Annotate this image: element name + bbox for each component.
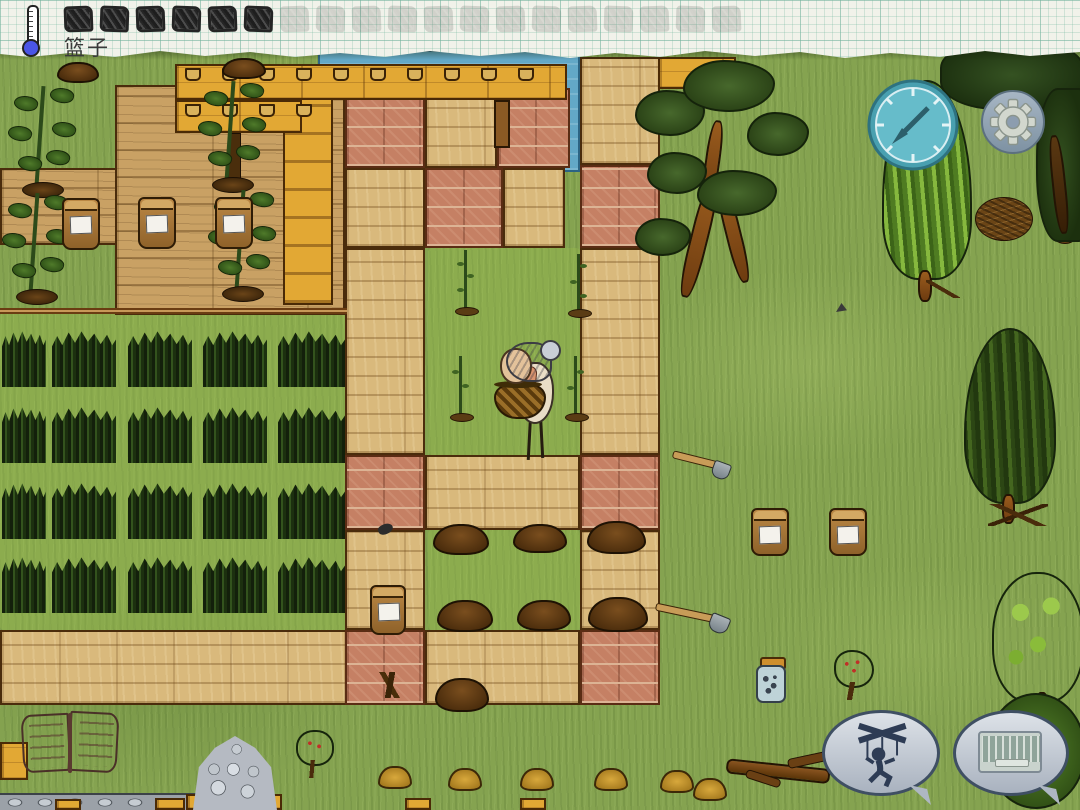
thermometer-icon: [22, 5, 40, 57]
adobe-wall[interactable]: [425, 455, 580, 530]
soil-pile[interactable]: [435, 678, 489, 712]
food-pip-empty: [568, 6, 598, 33]
food-pip-empty: [676, 6, 706, 33]
crop-row-clump[interactable]: [128, 555, 192, 613]
emote-button[interactable]: [822, 710, 940, 796]
ore-mound[interactable]: [594, 768, 628, 791]
crop-row-clump[interactable]: [52, 405, 116, 463]
ore-mound[interactable]: [693, 778, 727, 801]
crop-row-clump[interactable]: [52, 555, 116, 613]
food-pip-empty: [352, 6, 382, 33]
food-pip-empty: [460, 6, 490, 33]
soil-pile[interactable]: [588, 597, 648, 632]
adobe-wall[interactable]: [503, 168, 565, 248]
wood-box[interactable]: [55, 799, 81, 810]
crop-row-clump[interactable]: [2, 555, 46, 613]
ore-mound[interactable]: [660, 770, 694, 793]
wood-box[interactable]: [405, 798, 431, 810]
labeled-crock[interactable]: [215, 197, 253, 249]
tomato-plant[interactable]: [0, 185, 70, 305]
berry-seedling[interactable]: [832, 650, 872, 702]
compass-icon: [866, 78, 960, 172]
crop-row-clump[interactable]: [203, 481, 267, 539]
crop-row-clump[interactable]: [2, 329, 46, 387]
ore-mound[interactable]: [448, 768, 482, 791]
clay-cup[interactable]: [296, 104, 312, 117]
food-pip-filled: [172, 6, 202, 33]
crop-row-clump[interactable]: [128, 481, 192, 539]
food-pip-empty: [424, 6, 454, 33]
soil-pile[interactable]: [517, 600, 571, 631]
dirt-mound[interactable]: [222, 58, 266, 79]
clay-cup[interactable]: [481, 68, 497, 81]
food-pip-filled: [136, 6, 166, 33]
tomato-plant[interactable]: [6, 78, 76, 198]
clay-cup[interactable]: [407, 68, 423, 81]
clay-cup[interactable]: [444, 68, 460, 81]
crop-row-clump[interactable]: [2, 481, 46, 539]
brick-wall[interactable]: [425, 168, 503, 248]
hair-bun: [540, 340, 561, 361]
wood-box[interactable]: [520, 798, 546, 810]
clay-cup[interactable]: [518, 68, 534, 81]
berry-seedling[interactable]: [294, 730, 332, 780]
adobe-wall-column[interactable]: [345, 248, 425, 455]
brick-wall[interactable]: [580, 630, 660, 705]
food-pip-empty: [604, 6, 634, 33]
cypress-tree[interactable]: [958, 328, 1064, 534]
adobe-wall-row[interactable]: [0, 630, 347, 705]
food-pip-filled: [100, 6, 130, 33]
ore-mound[interactable]: [378, 766, 412, 789]
food-pip-empty: [316, 6, 346, 33]
brick-wall[interactable]: [345, 88, 425, 168]
labeled-crock[interactable]: [138, 197, 176, 249]
crop-row-clump[interactable]: [278, 405, 345, 463]
soil-pile[interactable]: [587, 521, 646, 554]
compass-button[interactable]: [866, 78, 960, 172]
adobe-wall[interactable]: [345, 168, 425, 248]
shovel[interactable]: [655, 597, 747, 645]
brick-wall[interactable]: [345, 455, 425, 530]
food-pip-empty: [532, 6, 562, 33]
tomato-plot[interactable]: [0, 57, 290, 317]
keyboard-icon: [978, 731, 1042, 773]
ore-mound[interactable]: [520, 768, 554, 791]
food-pip-empty: [496, 6, 526, 33]
soil-pile[interactable]: [433, 524, 489, 555]
game-viewport[interactable]: 篮子: [0, 0, 1080, 810]
crop-row-clump[interactable]: [128, 329, 192, 387]
thermometer-bulb: [22, 39, 40, 57]
tree-sapling[interactable]: [455, 250, 477, 316]
crop-row-clump[interactable]: [52, 329, 116, 387]
settings-button[interactable]: [981, 90, 1045, 154]
brick-wall[interactable]: [580, 455, 660, 530]
old-woman-with-basket[interactable]: [490, 340, 570, 465]
open-book[interactable]: [22, 708, 120, 778]
food-pip-filled: [244, 6, 274, 33]
clay-cup[interactable]: [296, 68, 312, 81]
food-pip-empty: [280, 6, 310, 33]
food-pip-row: [64, 6, 824, 36]
crop-row-clump[interactable]: [278, 555, 345, 613]
crop-row-clump[interactable]: [278, 481, 345, 539]
food-pip-empty: [640, 6, 670, 33]
clay-cup[interactable]: [333, 68, 349, 81]
food-pip-filled: [208, 6, 238, 33]
soil-crock[interactable]: [751, 508, 789, 556]
shovel[interactable]: [672, 448, 732, 482]
soil-pile[interactable]: [513, 524, 567, 553]
crop-row-clump[interactable]: [278, 329, 345, 387]
soil-crock[interactable]: [829, 508, 867, 556]
basket: [494, 383, 546, 419]
crop-row-clump[interactable]: [203, 405, 267, 463]
seed-jar[interactable]: [756, 657, 786, 703]
dirt-mound[interactable]: [57, 62, 99, 83]
gear-icon: [983, 92, 1043, 152]
puppet-crossed-icon: [828, 716, 934, 790]
tree-sapling[interactable]: [450, 356, 472, 422]
tree-sapling[interactable]: [568, 254, 590, 318]
crop-row-clump[interactable]: [203, 555, 267, 613]
olive-tree[interactable]: [635, 60, 805, 305]
stone-pile[interactable]: [193, 736, 277, 810]
labeled-crock[interactable]: [62, 198, 100, 250]
food-pip-filled: [64, 6, 94, 33]
food-pip-empty: [712, 6, 742, 33]
crop-row-clump[interactable]: [52, 481, 116, 539]
soil-pile[interactable]: [437, 600, 493, 632]
labeled-crock[interactable]: [370, 585, 406, 635]
clay-cup[interactable]: [370, 68, 386, 81]
selected-item-label: 篮子: [64, 32, 110, 62]
shelf-pole: [494, 100, 510, 148]
dry-branch[interactable]: [355, 672, 425, 698]
crop-field[interactable]: [0, 315, 347, 630]
tomato-plant[interactable]: [196, 73, 266, 193]
adobe-wall[interactable]: [425, 92, 497, 168]
wood-box[interactable]: [155, 798, 185, 810]
crop-row-clump[interactable]: [2, 405, 46, 463]
flint-chip[interactable]: [836, 303, 847, 312]
crop-row-clump[interactable]: [128, 405, 192, 463]
chat-button[interactable]: [953, 710, 1069, 796]
crop-row-clump[interactable]: [203, 329, 267, 387]
food-pip-empty: [388, 6, 418, 33]
